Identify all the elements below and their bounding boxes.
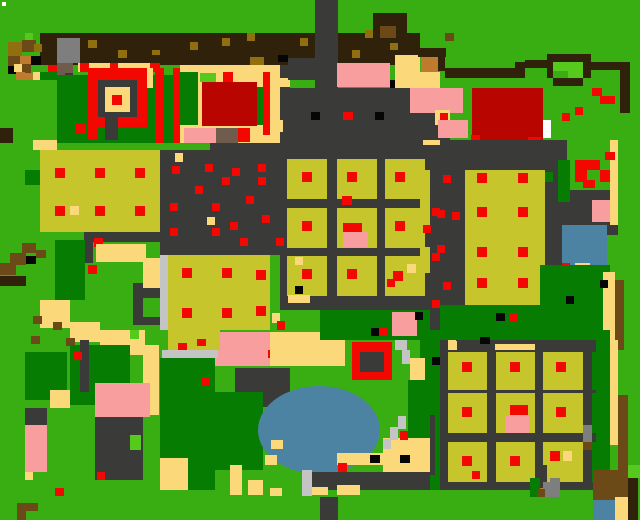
west-farm-pixel (95, 168, 105, 178)
cliffs-pixel (31, 56, 41, 65)
castle-pixel (343, 112, 353, 120)
northeast-pixel (620, 62, 630, 113)
village-center-pixel (379, 328, 387, 336)
northeast-pixel (525, 60, 547, 68)
plazas-pixel (240, 238, 248, 246)
orchard-grid-2-pixel (440, 352, 448, 490)
east-field-pixel (423, 225, 431, 233)
orchard-grid-2-pixel (462, 407, 472, 417)
treeline-pixel (40, 33, 420, 65)
shrine-pixel (88, 127, 98, 140)
southeast-corner-pixel (593, 470, 628, 500)
southwest-pixel (80, 340, 89, 392)
shrine-pixel (33, 140, 57, 150)
northeast-pixel (562, 113, 570, 121)
red-plaza-pixel (263, 72, 270, 135)
orchard-grid-1-pixel (302, 269, 312, 279)
treeline-pixel (250, 57, 264, 65)
castle-pixel (288, 58, 315, 80)
village-center-pixel (230, 465, 242, 495)
plazas-pixel (205, 164, 213, 172)
west-farm-pixel (182, 268, 192, 278)
village-center-pixel (395, 340, 407, 350)
southwest-pixel (25, 408, 47, 425)
northeast-pixel (421, 57, 438, 72)
northeast-pixel (590, 62, 622, 70)
southwest-pixel (55, 488, 64, 496)
east-field-pixel (477, 207, 487, 217)
orchard-grid-2-pixel (505, 416, 529, 433)
east-field-pixel (477, 247, 487, 257)
orchard-grid-1-pixel (395, 172, 405, 182)
treeline-pixel (118, 50, 127, 58)
orchard-grid-2-pixel (535, 342, 545, 350)
east-field-pixel (437, 210, 445, 218)
northeast-pixel (547, 54, 587, 62)
west-farm-pixel (160, 255, 168, 330)
screenshot-stage (0, 0, 640, 520)
village-center-pixel (398, 416, 406, 429)
orchard-grid-2-pixel (578, 341, 587, 349)
village-center-pixel (337, 485, 360, 495)
castle-pixel (315, 0, 338, 92)
plazas-pixel (207, 217, 215, 225)
orchard-grid-1-pixel (432, 253, 440, 261)
east-field-pixel (443, 175, 451, 183)
orchard-grid-2-pixel (535, 352, 543, 482)
west-farm-pixel (55, 168, 65, 178)
red-plaza-pixel (180, 72, 198, 125)
orchard-grid-2-pixel (480, 337, 490, 344)
castle-pixel (395, 55, 420, 88)
orchard-grid-1-pixel (302, 172, 312, 182)
orchard-grid-1-pixel (277, 321, 285, 330)
orchard-grid-2-pixel (448, 341, 457, 350)
south-forest-pixel (188, 452, 215, 490)
treeline-pixel (152, 50, 160, 55)
plazas-pixel (170, 228, 178, 236)
village-center-pixel (410, 358, 425, 380)
orchard-grid-1-pixel (337, 256, 377, 296)
southwest-pixel (25, 472, 33, 480)
west-farm-pixel (95, 206, 105, 216)
northeast-pixel (438, 120, 468, 138)
southeast-corner-pixel (537, 489, 545, 497)
east-field-pixel (452, 212, 460, 220)
northeast-pixel (418, 48, 446, 57)
plazas-pixel (172, 166, 180, 174)
shrine-pixel (76, 124, 86, 133)
east-field-pixel (518, 207, 528, 217)
south-forest-pixel (160, 358, 215, 458)
west-woods-pixel (33, 316, 42, 324)
orchard-grid-2-pixel (563, 451, 572, 461)
pond-north-pixel (558, 160, 570, 202)
west-farm-pixel (133, 283, 143, 325)
orchard-grid-2-pixel (556, 362, 566, 372)
cliffs-pixel (57, 38, 80, 63)
treeline-pixel (365, 30, 373, 38)
northeast-pixel (575, 107, 583, 115)
orchard-grid-2-pixel (495, 344, 540, 350)
east-field-pixel (477, 173, 487, 183)
west-farm-pixel (256, 306, 266, 316)
west-farm-pixel (40, 150, 160, 232)
southwest-pixel (130, 435, 141, 450)
east-field-pixel (477, 278, 487, 288)
village-center-pixel (358, 372, 392, 380)
orchard-grid-2-pixel (510, 456, 520, 466)
orchard-grid-2-pixel (487, 352, 496, 482)
plazas-pixel (230, 222, 238, 230)
orchard-grid-2-pixel (610, 340, 618, 445)
west-woods-pixel (26, 256, 36, 264)
treeline-pixel (445, 33, 454, 41)
plazas-pixel (232, 168, 240, 176)
castle-pixel (375, 112, 384, 120)
plazas-pixel (262, 215, 270, 223)
west-farm-pixel (70, 206, 79, 215)
village-center-pixel (402, 350, 410, 364)
orchard-grid-1-pixel (288, 295, 310, 303)
pond-north-pixel (607, 225, 618, 233)
east-forest-pixel (566, 296, 574, 304)
red-plaza-pixel (200, 73, 216, 82)
village-center-pixel (265, 455, 277, 465)
cliffs-pixel (2, 2, 6, 6)
village-center-pixel (392, 312, 417, 336)
northeast-pixel (543, 120, 551, 138)
west-farm-pixel (55, 240, 85, 300)
orchard-grid-2-pixel (440, 433, 596, 442)
east-field-pixel (420, 170, 430, 232)
village-center-pixel (320, 497, 338, 520)
west-woods-pixel (0, 263, 16, 275)
southwest-pixel (97, 472, 105, 480)
east-field-pixel (437, 245, 445, 253)
east-forest-pixel (600, 280, 608, 288)
plazas-pixel (170, 203, 178, 211)
village-center-pixel (370, 455, 380, 463)
cliffs-pixel (34, 44, 42, 52)
orchard-grid-1-pixel (302, 221, 312, 231)
orchard-grid-1-pixel (387, 279, 395, 287)
village-center-pixel (390, 427, 398, 440)
village-center-pixel (214, 332, 270, 366)
southwest-pixel (17, 508, 26, 520)
treeline-pixel (222, 38, 230, 46)
southwest-pixel (50, 390, 70, 408)
northeast-pixel (515, 62, 525, 78)
treeline-pixel (278, 55, 288, 62)
treeline-pixel (390, 42, 398, 50)
southwest-pixel (95, 383, 150, 417)
village-center-pixel (312, 472, 430, 490)
pond-north-pixel (575, 160, 600, 170)
southeast-corner-pixel (615, 497, 628, 520)
treeline-pixel (88, 40, 97, 48)
west-farm-pixel (55, 206, 65, 216)
southwest-pixel (73, 352, 82, 360)
treeline-pixel (247, 33, 255, 41)
game-map (0, 0, 640, 520)
orchard-grid-1-pixel (295, 286, 303, 294)
village-center-pixel (312, 487, 328, 495)
pond-north-pixel (562, 225, 607, 265)
village-center-pixel (400, 455, 410, 463)
cliffs-pixel (40, 72, 57, 80)
southeast-corner-pixel (583, 425, 592, 442)
west-woods-pixel (0, 276, 26, 286)
west-farm-pixel (130, 330, 139, 339)
west-woods-pixel (53, 322, 62, 330)
east-field-pixel (518, 173, 528, 183)
northeast-pixel (438, 57, 445, 71)
plazas-pixel (210, 143, 283, 180)
west-farm-pixel (135, 168, 145, 178)
plazas-pixel (222, 177, 230, 185)
plazas-pixel (258, 164, 266, 172)
treeline-pixel (380, 26, 396, 38)
orchard-grid-1-pixel (395, 221, 405, 231)
treeline-pixel (352, 50, 360, 58)
village-center-pixel (338, 463, 347, 472)
southwest-pixel (25, 425, 47, 472)
shrine-pixel (112, 95, 122, 105)
plazas-pixel (195, 186, 203, 194)
orchard-grid-2-pixel (556, 407, 566, 417)
plazas-pixel (276, 238, 284, 246)
west-woods-pixel (31, 336, 40, 344)
northeast-pixel (553, 78, 583, 86)
castle-pixel (337, 63, 390, 87)
red-plaza-pixel (184, 128, 216, 143)
orchard-grid-2-pixel (440, 482, 596, 490)
northeast-pixel (420, 72, 440, 88)
orchard-grid-1-pixel (432, 300, 440, 308)
village-center-pixel (400, 431, 408, 440)
southeast-corner-pixel (628, 465, 640, 478)
cliffs-pixel (0, 128, 13, 143)
village-center-pixel (371, 328, 379, 336)
east-field-pixel (443, 282, 451, 290)
west-farm-pixel (25, 170, 40, 185)
northeast-pixel (592, 88, 602, 96)
plazas-pixel (212, 228, 220, 236)
northeast-pixel (445, 68, 517, 78)
south-forest-pixel (160, 458, 188, 490)
plazas-pixel (246, 196, 254, 204)
plazas-pixel (258, 177, 266, 185)
west-woods-pixel (36, 250, 46, 258)
east-field-pixel (420, 247, 430, 273)
orchard-grid-2-pixel (472, 471, 480, 479)
northeast-pixel (568, 62, 583, 78)
west-farm-pixel (88, 265, 97, 274)
west-farm-pixel (96, 244, 146, 262)
orchard-grid-2-pixel (510, 405, 528, 415)
village-center-pixel (383, 439, 391, 449)
pond-north-pixel (545, 172, 553, 182)
red-plaza-pixel (202, 82, 257, 126)
west-farm-pixel (168, 255, 270, 330)
village-center-pixel (415, 312, 423, 320)
east-field-pixel (518, 278, 528, 288)
village-center-pixel (213, 392, 263, 470)
plazas-pixel (175, 153, 183, 162)
northeast-pixel (472, 88, 543, 140)
orchard-grid-2-pixel (510, 362, 520, 372)
treeline-pixel (190, 42, 198, 50)
orchard-grid-1-pixel (347, 172, 357, 182)
red-plaza-pixel (223, 72, 233, 82)
northeast-pixel (600, 96, 615, 104)
orchard-grid-2-pixel (432, 357, 440, 365)
orchard-grid-1-pixel (343, 223, 362, 232)
orchard-grid-2-pixel (462, 456, 472, 466)
orchard-grid-1-pixel (347, 269, 357, 279)
shrine-pixel (105, 117, 118, 140)
village-center-pixel (360, 352, 384, 372)
village-center-pixel (352, 342, 392, 352)
pond-north-pixel (605, 152, 615, 160)
orchard-grid-1-pixel (385, 256, 425, 296)
pond-north-pixel (583, 180, 595, 188)
west-farm-pixel (222, 268, 232, 278)
orchard-grid-2-pixel (550, 451, 560, 461)
southeast-corner-pixel (628, 478, 638, 520)
east-forest-pixel (510, 313, 518, 321)
red-plaza-pixel (216, 128, 238, 143)
orchard-grid-1-pixel (343, 232, 368, 247)
village-center-pixel (248, 480, 263, 495)
orchard-grid-1-pixel (407, 264, 416, 273)
red-plaza-pixel (238, 128, 250, 142)
west-farm-pixel (222, 308, 232, 318)
west-farm-pixel (168, 330, 220, 350)
west-farm-pixel (256, 270, 266, 280)
orchard-grid-2-pixel (583, 352, 592, 482)
west-farm-pixel (197, 339, 206, 346)
orchard-grid-1-pixel (337, 159, 377, 199)
west-farm-pixel (135, 206, 145, 216)
orchard-grid-1-pixel (385, 208, 425, 248)
southeast-corner-pixel (593, 500, 615, 520)
cliffs-pixel (8, 42, 22, 56)
castle-pixel (311, 112, 320, 120)
cliffs-pixel (16, 72, 25, 80)
village-center-pixel (270, 488, 282, 496)
southeast-corner-pixel (583, 442, 592, 450)
west-farm-pixel (182, 308, 192, 318)
orchard-grid-1-pixel (342, 196, 352, 205)
west-farm-pixel (84, 242, 93, 263)
orchard-grid-2-pixel (543, 442, 583, 482)
village-center-pixel (408, 380, 430, 438)
west-farm-pixel (162, 350, 218, 358)
treeline-pixel (300, 38, 308, 46)
orchard-grid-1-pixel (295, 257, 303, 265)
shrine-pixel (155, 68, 164, 143)
east-field-pixel (518, 247, 528, 257)
plazas-pixel (423, 140, 440, 145)
northeast-pixel (553, 62, 568, 71)
plazas-pixel (212, 203, 220, 211)
orchard-grid-1-pixel (385, 159, 425, 199)
orchard-grid-2-pixel (462, 362, 472, 372)
south-forest-pixel (202, 377, 210, 385)
east-forest-pixel (496, 313, 505, 321)
west-woods-pixel (22, 243, 36, 253)
village-center-pixel (302, 470, 312, 496)
